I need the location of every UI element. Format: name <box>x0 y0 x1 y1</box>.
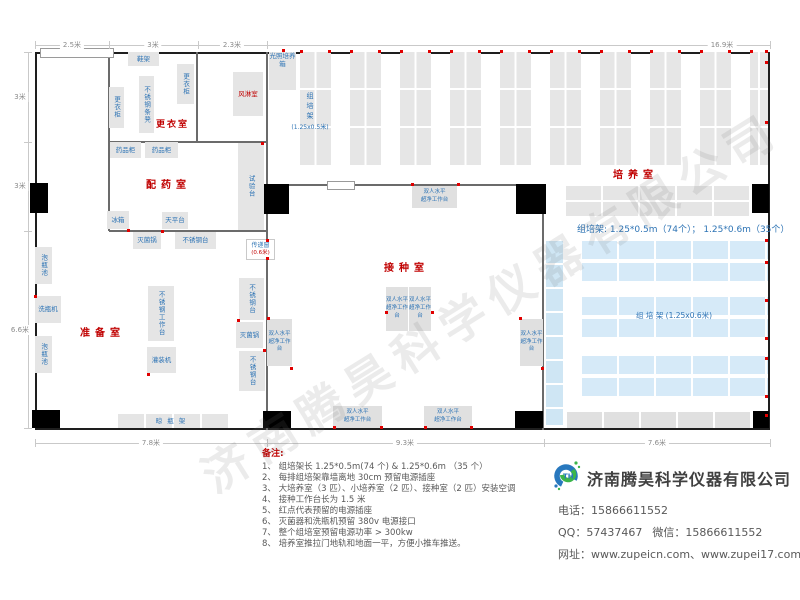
equipment-药品柜: 药品柜 <box>145 142 178 158</box>
power-outlet-dot <box>333 426 336 429</box>
note-item: 8、 培养室推拉门地轨和地面一平，方便小推车推送。 <box>262 539 515 550</box>
equipment-灌装机: 灌装机 <box>147 347 176 373</box>
power-outlet-dot <box>578 50 581 53</box>
door-symbol <box>515 411 543 428</box>
inner-wall <box>542 185 544 430</box>
power-outlet-dot <box>519 317 522 320</box>
power-outlet-dot <box>431 311 434 314</box>
equipment-晾瓶架: 晾瓶架 <box>118 414 228 428</box>
dim-label-top: 2.3米 <box>220 40 244 50</box>
equipment-泡瓶池: 泡瓶池 <box>35 247 52 284</box>
inner-wall <box>267 184 544 186</box>
window-symbol <box>327 181 355 190</box>
room-label-准备室: 准备室 <box>80 324 125 339</box>
dim-tick <box>35 439 36 447</box>
equipment-泡瓶池: 泡瓶池 <box>35 336 52 373</box>
contact-value: 15866611552 <box>685 526 762 539</box>
power-outlet-dot <box>765 261 768 264</box>
power-outlet-dot <box>34 295 37 298</box>
power-outlet-dot <box>478 50 481 53</box>
dim-tick <box>24 142 32 143</box>
equipment-鞋架: 鞋架 <box>128 52 159 66</box>
power-outlet-dot <box>765 121 768 124</box>
equipment-不锈钢条凳: 不锈钢条凳 <box>139 76 154 133</box>
blue-rack-row <box>582 241 768 259</box>
door-symbol <box>263 411 291 428</box>
dim-tick <box>24 52 32 53</box>
blue-rack-row <box>582 356 768 374</box>
power-outlet-dot <box>728 50 731 53</box>
culture-rack-column <box>500 52 531 165</box>
power-outlet-dot <box>147 373 150 376</box>
notes-block: 备注: 1、 组培架长 1.25*0.5m(74 个) & 1.25*0.6m … <box>262 446 515 550</box>
dim-tick <box>109 41 110 49</box>
dim-label-bottom: 7.6米 <box>645 438 669 448</box>
dim-label-left: 3米 <box>11 92 28 102</box>
power-outlet-dot <box>765 357 768 360</box>
room-label-配药室: 配药室 <box>146 176 191 191</box>
culture-rack-column <box>600 52 631 165</box>
transfer-window: 传递窗(0.6米) <box>246 239 275 260</box>
contact-block: TH 济南腾昊科学仪器有限公司 电话：15866611552QQ：5743746… <box>552 459 800 562</box>
company-name: 济南腾昊科学仪器有限公司 <box>587 466 791 490</box>
contact-rows: 电话：15866611552QQ：57437467微信：15866611552网… <box>552 502 800 562</box>
company-logo-icon: TH <box>552 459 582 496</box>
blue-rack-row <box>582 378 768 396</box>
contact-label: QQ： <box>558 526 586 539</box>
dim-tick <box>544 439 545 447</box>
power-outlet-dot <box>385 311 388 314</box>
power-outlet-dot <box>161 230 164 233</box>
door-symbol <box>32 410 60 428</box>
equipment-洗瓶机: 洗瓶机 <box>35 296 61 323</box>
dim-label-left: 6.6米 <box>8 325 32 335</box>
power-outlet-dot <box>127 229 130 232</box>
dim-line-left <box>28 52 29 428</box>
equipment-不锈钢工作台: 不锈钢工作台 <box>148 286 174 341</box>
power-outlet-dot <box>380 426 383 429</box>
blue-rack-row <box>582 263 768 281</box>
equipment-灭菌锅: 灭菌锅 <box>133 232 161 249</box>
clean-bench: 双人水平 超净工作台 <box>386 287 408 331</box>
note-item: 2、 每排组培架靠墙离地 30cm 预留电源插座 <box>262 473 515 484</box>
transfer-window-label: 传递窗 <box>251 243 269 250</box>
culture-rack-column <box>750 52 768 165</box>
power-outlet-dot <box>266 257 269 260</box>
power-outlet-dot <box>424 426 427 429</box>
power-outlet-dot <box>700 50 703 53</box>
clean-bench: 双人水平 超净工作台 <box>267 319 292 366</box>
dim-tick <box>198 41 199 49</box>
contact-label: 微信： <box>652 526 685 539</box>
power-outlet-dot <box>550 50 553 53</box>
notes-list: 1、 组培架长 1.25*0.5m(74 个) & 1.25*0.6m （35 … <box>262 462 515 550</box>
dim-tick <box>267 41 268 49</box>
note-item: 3、 大培养室（3 匹）、小培养室（2 匹）、接种室（2 匹）安装空调 <box>262 484 515 495</box>
equipment-药品柜: 药品柜 <box>110 142 141 158</box>
equipment-更衣柜: 更衣柜 <box>177 64 194 104</box>
power-outlet-dot <box>378 50 381 53</box>
equipment-天平台: 天平台 <box>162 212 188 229</box>
dim-tick <box>35 41 36 49</box>
contact-row: 电话：15866611552 <box>558 502 800 518</box>
door-symbol <box>30 183 48 213</box>
power-outlet-dot <box>328 50 331 53</box>
contact-row: QQ：57437467微信：15866611552 <box>558 524 800 540</box>
power-outlet-dot <box>528 50 531 53</box>
power-outlet-dot <box>350 50 353 53</box>
dim-label-top: 3米 <box>144 40 161 50</box>
contact-header: TH 济南腾昊科学仪器有限公司 <box>552 459 800 496</box>
equipment-不锈钢台: 不锈钢台 <box>239 278 264 320</box>
power-outlet-dot <box>261 142 264 145</box>
power-outlet-dot <box>541 367 544 370</box>
note-item: 4、 接种工作台长为 1.5 米 <box>262 495 515 506</box>
clean-bench: 双人水平 超净工作台 <box>520 319 543 366</box>
note-item: 7、 整个组培室预留电源功率 > 300kw <box>262 528 515 539</box>
blue-rack-row <box>582 319 768 337</box>
culture-rack-column <box>450 52 481 165</box>
room-label-接种室: 接种室 <box>384 259 429 274</box>
logo-letters: TH <box>563 473 574 481</box>
contact-row: 网址：www.zupeicn.com、www.zupei17.com <box>558 546 800 562</box>
culture-rack-column <box>350 52 381 165</box>
power-outlet-dot <box>428 50 431 53</box>
equipment-更衣柜: 更衣柜 <box>109 87 124 128</box>
culture-rack-column <box>400 52 431 165</box>
dim-label-left: 3米 <box>11 181 28 191</box>
power-outlet-dot <box>470 426 473 429</box>
dim-tick <box>770 41 771 49</box>
notes-title: 备注: <box>262 446 515 459</box>
equipment-冰箱: 冰箱 <box>107 211 129 229</box>
culture-gray-rack-bottom <box>567 412 752 428</box>
clean-bench: 双人水平 超净工作台 <box>424 406 472 428</box>
contact-value: www.zupeicn.com、www.zupei17.com <box>591 548 800 561</box>
power-outlet-dot <box>457 183 460 186</box>
power-outlet-dot <box>765 337 768 340</box>
power-outlet-dot <box>237 319 240 322</box>
dim-label-top: 2.5米 <box>60 40 84 50</box>
power-outlet-dot <box>650 50 653 53</box>
power-outlet-dot <box>765 50 768 53</box>
power-outlet-dot <box>765 395 768 398</box>
blue-rack-strip <box>546 241 563 425</box>
power-outlet-dot <box>765 239 768 242</box>
equipment-不锈钢台: 不锈钢台 <box>239 351 265 391</box>
note-item: 6、 灭菌器和洗瓶机预留 380v 电源接口 <box>262 517 515 528</box>
clean-bench: 双人水平 超净工作台 <box>333 406 382 428</box>
clean-bench: 双人水平 超净工作台 <box>412 186 457 208</box>
transfer-window-size: (0.6米) <box>251 250 270 256</box>
power-outlet-dot <box>300 50 303 53</box>
culture-rack-column <box>550 52 581 165</box>
power-outlet-dot <box>500 50 503 53</box>
room-label-培养室: 培养室 <box>613 166 658 181</box>
culture-rack-column <box>650 52 681 165</box>
door-symbol <box>262 184 289 214</box>
power-outlet-dot <box>263 349 266 352</box>
dim-tick <box>24 231 32 232</box>
dim-tick <box>770 439 771 447</box>
culture-rack-column <box>700 52 731 165</box>
contact-label: 电话： <box>558 504 591 517</box>
dim-label-top: 16.9米 <box>708 40 737 50</box>
power-outlet-dot <box>400 50 403 53</box>
equipment-试验台: 试验台 <box>238 143 264 230</box>
power-outlet-dot <box>600 50 603 53</box>
power-outlet-dot <box>290 367 293 370</box>
dim-tick <box>24 428 32 429</box>
power-outlet-dot <box>765 61 768 64</box>
rack-column-label: 组培架(1.25x0.5米) <box>288 92 332 131</box>
power-outlet-dot <box>266 239 269 242</box>
blue-rack-label: 组 培 架 (1.25x0.6米) <box>636 310 712 321</box>
power-outlet-dot <box>282 49 285 52</box>
note-item: 1、 组培架长 1.25*0.5m(74 个) & 1.25*0.6m （35 … <box>262 462 515 473</box>
culture-gray-rack <box>566 186 750 216</box>
inner-wall <box>196 52 198 142</box>
equipment-不锈钢台: 不锈钢台 <box>175 232 216 249</box>
power-outlet-dot <box>411 183 414 186</box>
rack-column-label-size: (1.25x0.5米) <box>288 122 332 131</box>
dim-label-bottom: 7.8米 <box>139 438 163 448</box>
power-outlet-dot <box>628 50 631 53</box>
door-symbol <box>752 184 769 213</box>
equipment-光照培养箱: 光照培养箱 <box>269 52 296 90</box>
power-outlet-dot <box>750 50 753 53</box>
equipment-风淋室: 风淋室 <box>233 72 263 116</box>
note-item: 5、 红点代表预留的电源插座 <box>262 506 515 517</box>
rack-column-label-chars: 组培架 <box>305 92 315 122</box>
door-symbol <box>516 184 546 214</box>
contact-value: 15866611552 <box>591 504 668 517</box>
power-outlet-dot <box>765 414 768 417</box>
power-outlet-dot <box>765 299 768 302</box>
power-outlet-dot <box>450 50 453 53</box>
contact-value: 57437467 <box>586 526 642 539</box>
power-outlet-dot <box>267 317 270 320</box>
equipment-灭菌锅: 灭菌锅 <box>236 322 263 348</box>
power-outlet-dot <box>678 50 681 53</box>
clean-bench: 双人水平 超净工作台 <box>409 287 431 331</box>
room-label-更衣室: 更衣室 <box>156 117 189 130</box>
contact-label: 网址： <box>558 548 591 561</box>
rack-count-note: 组培架: 1.25*0.5m（74个）； 1.25*0.6m（35个） <box>577 222 789 235</box>
